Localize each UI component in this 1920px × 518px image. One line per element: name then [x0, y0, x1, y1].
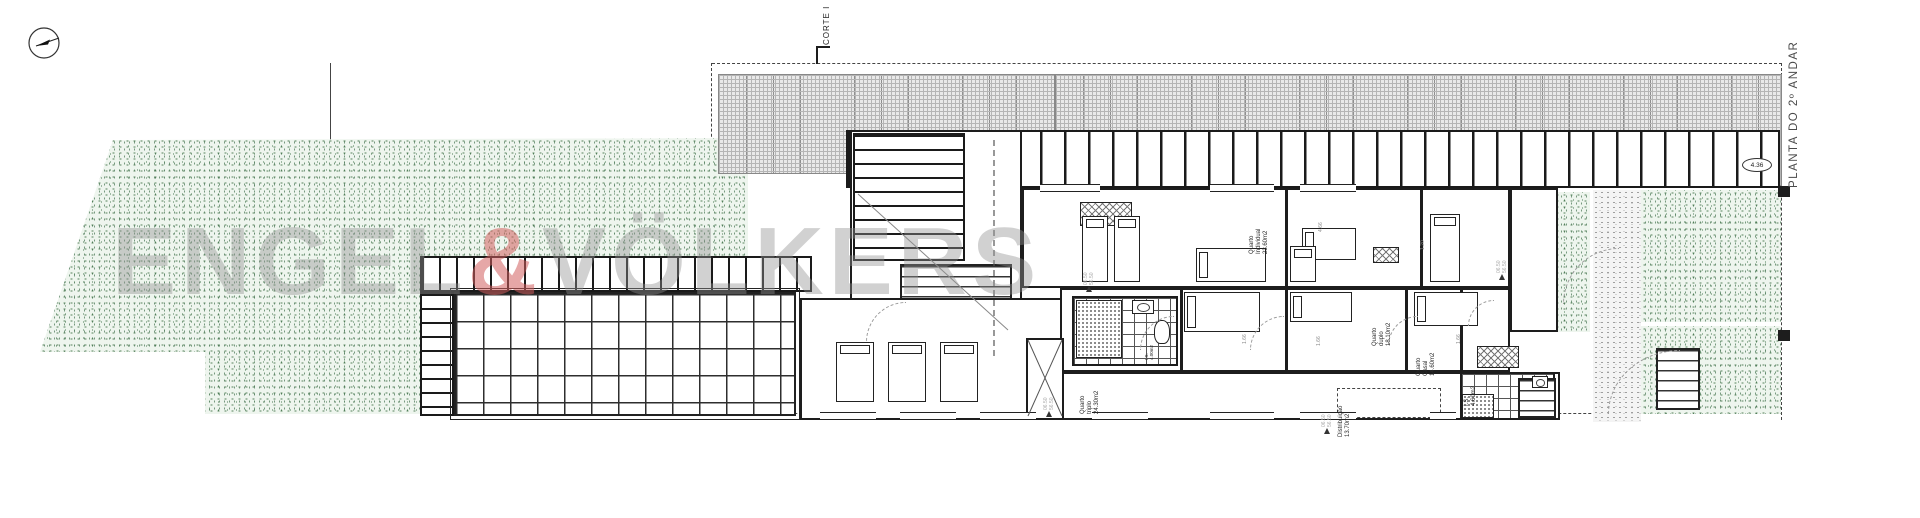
floorplan-canvas: CORTE I PLANTA DO 2º ANDAR [0, 0, 1920, 518]
linework-overlay [0, 0, 1920, 518]
